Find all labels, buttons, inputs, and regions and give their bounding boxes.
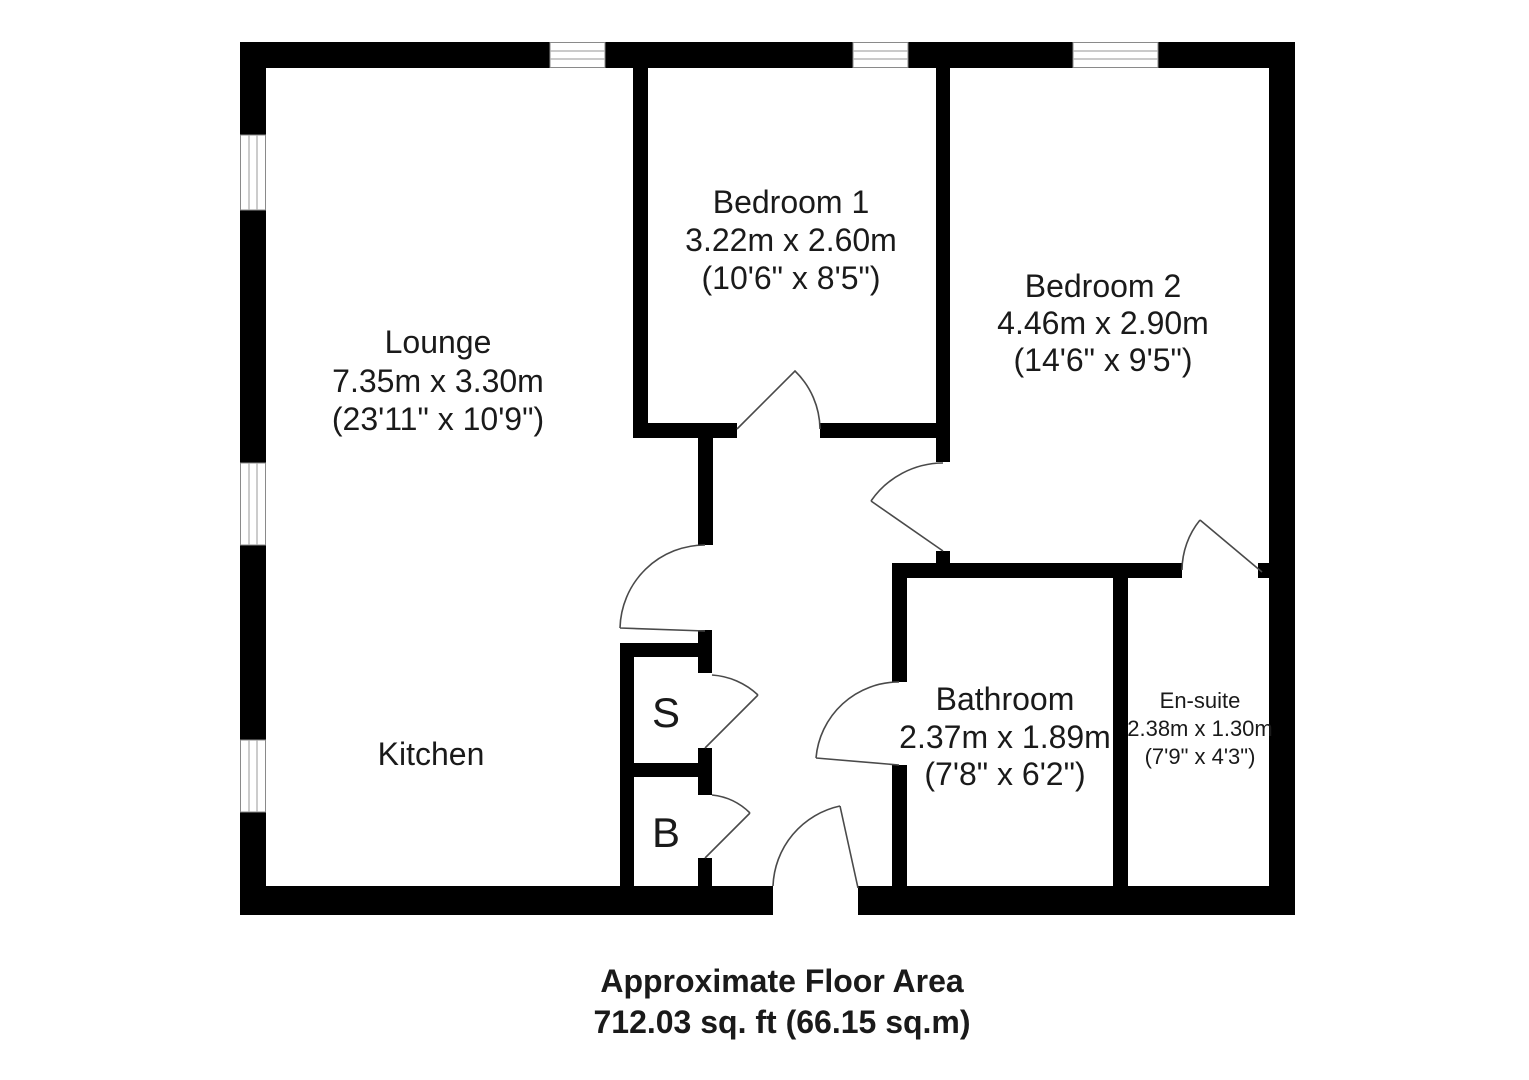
- window-top-2: [853, 43, 908, 68]
- cupboard-s-label: S: [652, 689, 680, 736]
- bathroom-metric: 2.37m x 1.89m: [899, 719, 1111, 755]
- wall-bathroom-north: [892, 563, 1182, 578]
- bedroom2-metric: 4.46m x 2.90m: [997, 305, 1209, 341]
- door-entry: [773, 806, 858, 888]
- wall-bedroom1-south-right: [820, 423, 950, 438]
- lounge-name: Lounge: [385, 324, 492, 360]
- ensuite-name: En-suite: [1160, 688, 1241, 713]
- lounge-imperial: (23'11" x 10'9"): [332, 401, 544, 437]
- door-ensuite: [1182, 520, 1262, 572]
- kitchen-name: Kitchen: [378, 736, 485, 772]
- door-bedroom1: [737, 371, 820, 429]
- wall-bedroom1-west: [633, 68, 648, 438]
- window-left-2-frame: [241, 463, 266, 545]
- window-left-3-frame: [241, 740, 266, 812]
- bathroom-imperial: (7'8" x 6'2"): [924, 756, 1085, 792]
- window-left-1: [241, 135, 266, 210]
- wall-bathroom-west-lower: [892, 765, 907, 886]
- wall-top-2: [605, 42, 853, 68]
- ensuite-imperial: (7'9" x 4'3"): [1145, 744, 1256, 769]
- window-top-1: [550, 43, 605, 68]
- wall-right: [1269, 42, 1295, 915]
- ensuite-metric: 2.38m x 1.30m: [1127, 716, 1273, 741]
- floorplan-page: Lounge 7.35m x 3.30m (23'11" x 10'9") Be…: [0, 0, 1529, 1080]
- door-bedroom2: [871, 463, 943, 551]
- wall-bathroom-west-upper: [892, 578, 907, 682]
- window-top-1-frame: [550, 43, 605, 68]
- door-cupboard-s: [705, 675, 758, 748]
- wall-cupboards-east-mid-stub: [698, 748, 712, 795]
- window-top-2-frame: [853, 43, 908, 68]
- floorplan-drawing: Lounge 7.35m x 3.30m (23'11" x 10'9") Be…: [0, 0, 1529, 1080]
- wall-left-1: [240, 42, 266, 135]
- cupboard-b-label: B: [652, 809, 680, 856]
- bedroom2-name: Bedroom 2: [1025, 268, 1182, 304]
- lounge-metric: 7.35m x 3.30m: [332, 363, 544, 399]
- wall-bedroom1-south-left: [633, 423, 737, 438]
- bedroom1-imperial: (10'6" x 8'5"): [701, 260, 880, 296]
- door-bathroom: [816, 682, 899, 765]
- wall-bottom-2: [858, 886, 1295, 915]
- wall-left-3: [240, 545, 266, 740]
- wall-cupboards-east-bottom-stub: [698, 858, 712, 886]
- wall-left-2: [240, 210, 266, 463]
- door-lounge-hall: [620, 545, 705, 631]
- wall-bedroom-divider: [936, 68, 950, 462]
- footer-area: 712.03 sq. ft (66.15 sq.m): [593, 1004, 970, 1040]
- window-left-1-frame: [241, 135, 266, 210]
- wall-cupboards-north: [620, 643, 712, 657]
- bedroom2-imperial: (14'6" x 9'5"): [1013, 342, 1192, 378]
- room-labels: Lounge 7.35m x 3.30m (23'11" x 10'9") Be…: [332, 184, 1273, 856]
- bedroom1-metric: 3.22m x 2.60m: [685, 222, 897, 258]
- window-left-3: [241, 740, 266, 812]
- wall-bathroom-ensuite-divider: [1113, 578, 1128, 886]
- footer-title: Approximate Floor Area: [600, 963, 964, 999]
- wall-top-1: [240, 42, 550, 68]
- wall-cupboards-west: [620, 643, 634, 886]
- footer: Approximate Floor Area 712.03 sq. ft (66…: [593, 963, 970, 1040]
- bathroom-name: Bathroom: [936, 681, 1075, 717]
- door-cupboard-b: [705, 795, 750, 858]
- outer-walls: [240, 42, 1295, 915]
- window-top-3-frame: [1073, 43, 1158, 68]
- window-top-3: [1073, 43, 1158, 68]
- wall-top-3: [908, 42, 1073, 68]
- bedroom1-name: Bedroom 1: [713, 184, 870, 220]
- wall-hall-west-upper: [698, 438, 713, 545]
- wall-bottom-1: [240, 886, 773, 915]
- window-left-2: [241, 463, 266, 545]
